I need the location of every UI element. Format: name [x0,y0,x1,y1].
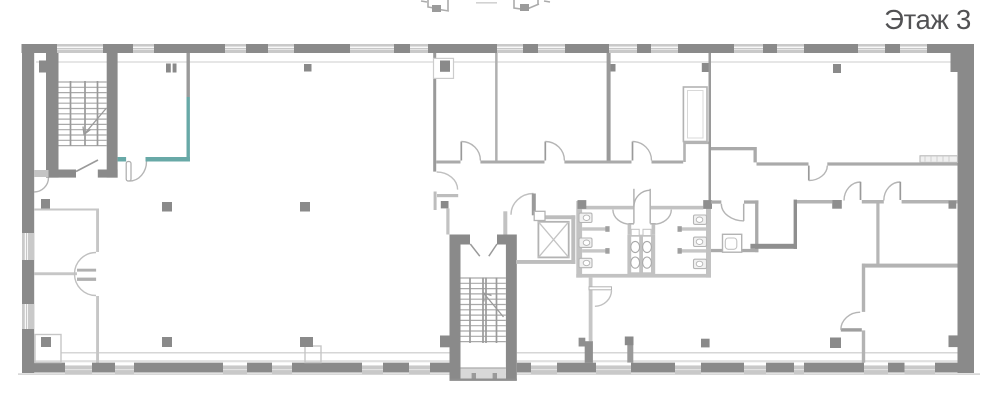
svg-text:Этаж 3: Этаж 3 [884,4,971,35]
